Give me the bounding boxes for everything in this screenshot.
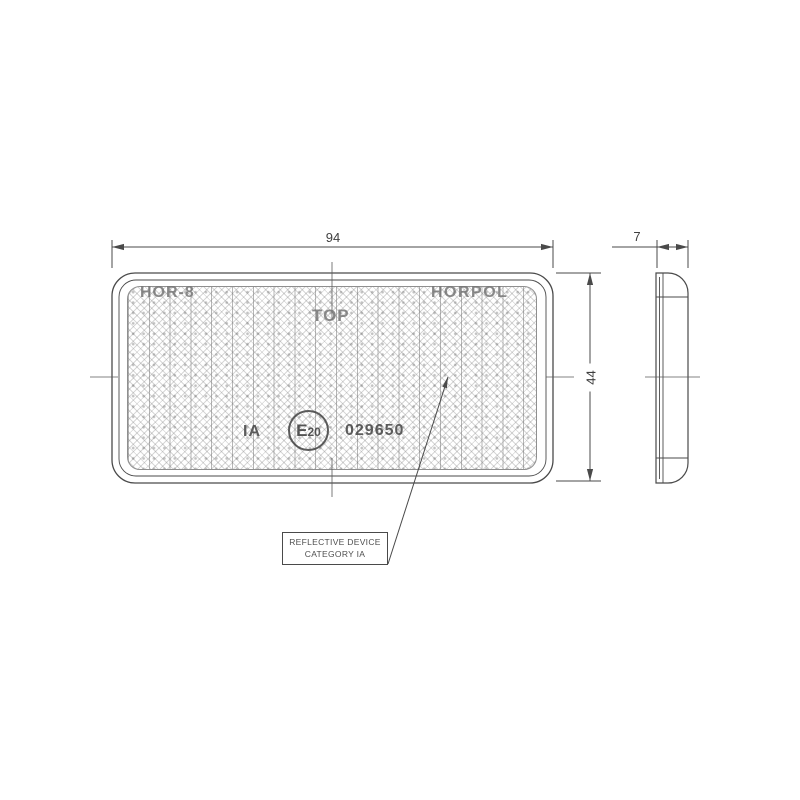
approval-number-marking: 029650 [345, 422, 404, 440]
thickness-arrow-left [657, 244, 669, 250]
side-view-outline [656, 273, 688, 483]
category-marking: IA [243, 423, 261, 441]
e-mark-number: 20 [307, 425, 320, 439]
width-dimension-label: 94 [320, 230, 346, 245]
e-mark-circle: E20 [288, 410, 329, 451]
thickness-arrow-right [676, 244, 688, 250]
thickness-dimension-label: 7 [628, 229, 646, 244]
brand-marking: HORPOL [431, 284, 508, 302]
width-arrow-left [112, 244, 124, 250]
callout-line-2: CATEGORY IA [305, 549, 365, 560]
callout-leader [388, 377, 448, 565]
front-view-outer-outline [112, 273, 553, 483]
model-marking: HOR-8 [140, 284, 195, 302]
callout-leader-line [388, 377, 448, 564]
height-dimension-label: 44 [584, 364, 599, 392]
callout-line-1: REFLECTIVE DEVICE [289, 537, 381, 548]
e-mark-letter: E [296, 421, 307, 441]
side-view-group [656, 273, 688, 483]
top-orientation-marking: TOP [312, 306, 350, 326]
thickness-dimension [612, 240, 688, 268]
reflector-technical-drawing: 94 44 7 HOR-8 HORPOL TOP IA E20 029650 R… [0, 0, 800, 800]
callout-box: REFLECTIVE DEVICE CATEGORY IA [282, 532, 388, 565]
height-arrow-bottom [587, 469, 593, 481]
front-view-outline-group [112, 273, 553, 483]
width-arrow-right [541, 244, 553, 250]
callout-leader-arrow [442, 377, 448, 389]
drawing-linework [0, 0, 800, 800]
height-arrow-top [587, 273, 593, 285]
